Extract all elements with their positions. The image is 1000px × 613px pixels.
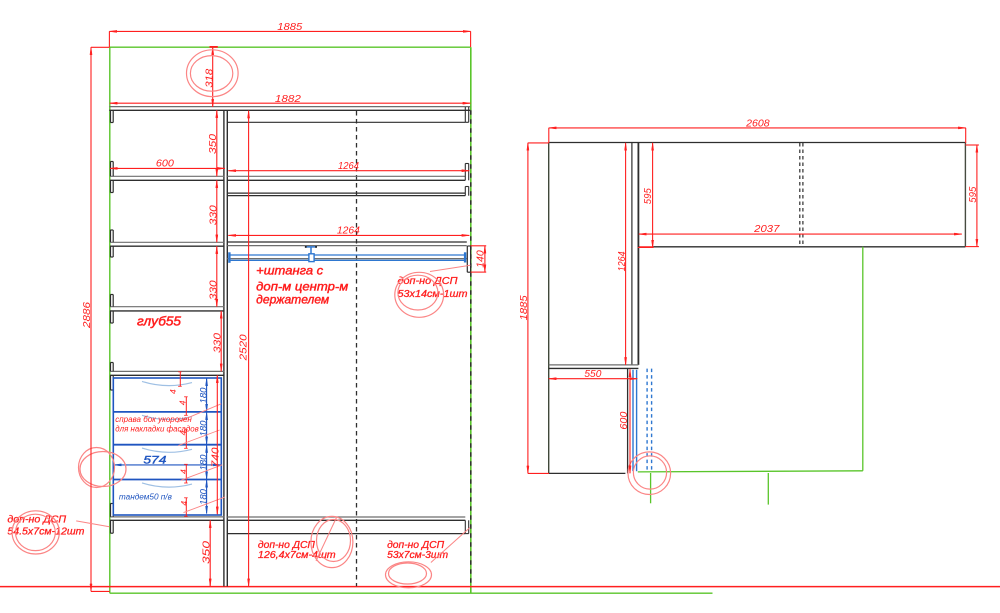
svg-text:4: 4	[177, 400, 187, 405]
svg-text:180: 180	[198, 420, 209, 437]
svg-text:4: 4	[179, 501, 189, 506]
svg-text:330: 330	[208, 205, 220, 225]
svg-text:350: 350	[207, 134, 219, 154]
svg-text:1264: 1264	[616, 251, 628, 271]
svg-text:600: 600	[156, 158, 174, 170]
svg-text:180: 180	[198, 387, 209, 404]
svg-text:глуб55: глуб55	[137, 314, 182, 329]
svg-text:595: 595	[642, 188, 654, 204]
svg-text:140: 140	[475, 250, 487, 268]
svg-text:350: 350	[201, 541, 213, 564]
svg-text:600: 600	[618, 411, 630, 429]
svg-text:4: 4	[168, 389, 178, 394]
svg-text:740: 740	[209, 447, 221, 467]
svg-text:1885: 1885	[277, 21, 302, 33]
svg-text:574: 574	[143, 455, 166, 467]
svg-text:+штанга с: +штанга с	[256, 264, 323, 278]
svg-text:126,4х7см-4шт: 126,4х7см-4шт	[258, 550, 336, 561]
svg-text:180: 180	[198, 488, 209, 505]
svg-text:318: 318	[203, 69, 215, 88]
svg-text:330: 330	[208, 280, 220, 300]
svg-text:тандем50 п/в: тандем50 п/в	[119, 492, 172, 501]
svg-text:4: 4	[179, 469, 189, 474]
svg-text:1885: 1885	[518, 295, 530, 320]
svg-text:180: 180	[198, 454, 209, 471]
svg-text:для накладки фасадов: для накладки фасадов	[115, 424, 199, 433]
svg-text:1882: 1882	[275, 93, 301, 105]
svg-text:2608: 2608	[745, 117, 770, 129]
svg-text:595: 595	[967, 187, 979, 203]
svg-text:54.5х7см-12шт: 54.5х7см-12шт	[7, 526, 84, 537]
svg-text:1264: 1264	[338, 160, 359, 172]
svg-text:справа бок укорочен: справа бок укорочен	[115, 415, 192, 424]
svg-text:доп-м центр-м: доп-м центр-м	[256, 279, 348, 293]
svg-text:2520: 2520	[237, 334, 249, 361]
svg-text:53х14см-1шт: 53х14см-1шт	[398, 289, 468, 300]
svg-text:2037: 2037	[753, 223, 781, 235]
svg-text:держателем: держателем	[256, 292, 329, 306]
svg-text:2886: 2886	[81, 302, 93, 329]
svg-text:1264: 1264	[337, 225, 360, 237]
svg-text:550: 550	[584, 368, 601, 380]
svg-text:330: 330	[211, 333, 223, 353]
